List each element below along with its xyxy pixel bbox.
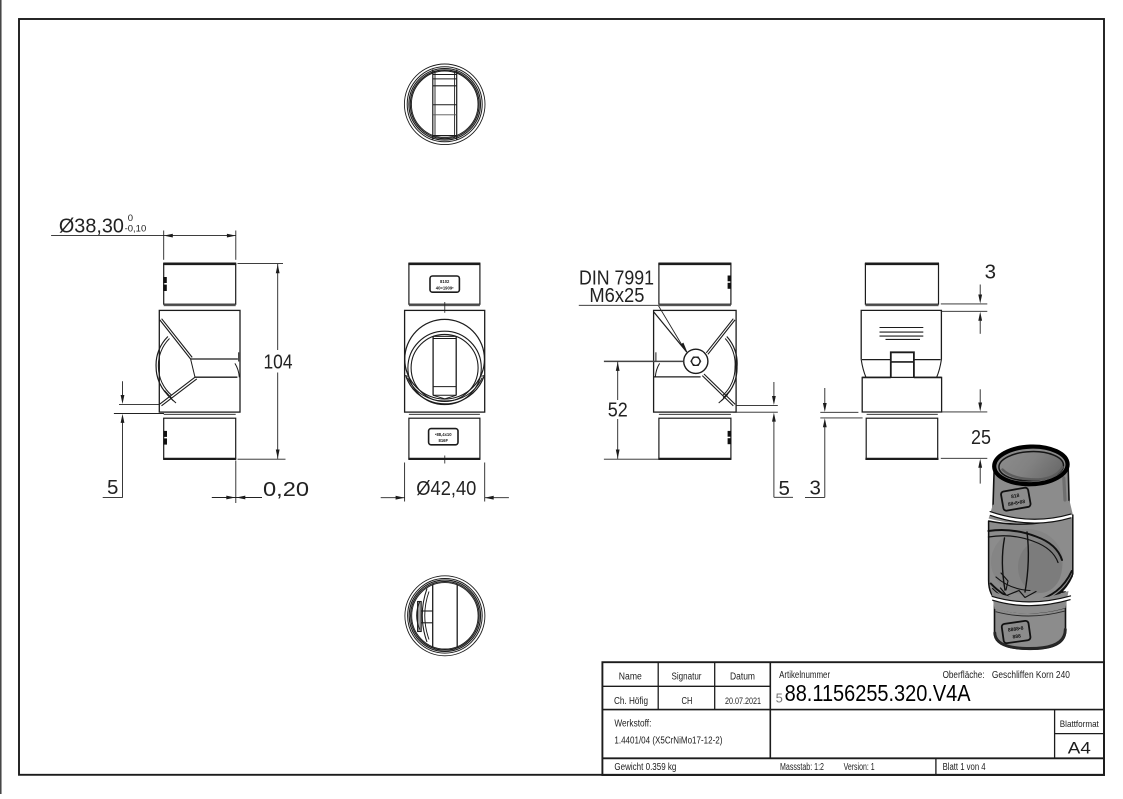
svg-text:5: 5	[779, 477, 790, 500]
svg-text:0,20: 0,20	[263, 478, 309, 501]
svg-text:Ø38,30: Ø38,30	[59, 215, 124, 238]
svg-text:104: 104	[264, 350, 293, 373]
svg-text:Werkstoff:: Werkstoff:	[614, 719, 651, 730]
svg-text:5: 5	[776, 691, 783, 706]
svg-text:0: 0	[128, 213, 133, 224]
svg-text:Signatur: Signatur	[672, 671, 703, 682]
svg-text:Blatt 1 von 4: Blatt 1 von 4	[943, 762, 986, 773]
svg-text:Name: Name	[619, 671, 642, 682]
svg-text:Blattformat: Blattformat	[1060, 719, 1099, 729]
svg-text:Ch. Höfig: Ch. Höfig	[614, 696, 648, 707]
svg-text:Version: 1: Version: 1	[844, 762, 875, 773]
svg-text:3: 3	[985, 261, 996, 284]
svg-text:888: 888	[1012, 633, 1021, 640]
svg-text:20.07.2021: 20.07.2021	[725, 696, 761, 706]
svg-text:Datum: Datum	[730, 671, 755, 682]
svg-text:52: 52	[608, 399, 628, 422]
svg-text:-0,10: -0,10	[125, 224, 147, 235]
svg-text:CH: CH	[682, 696, 693, 707]
svg-text:M6x25: M6x25	[589, 284, 644, 307]
svg-text:40=1909•: 40=1909•	[436, 286, 454, 291]
svg-text:8102: 8102	[440, 279, 450, 284]
svg-text:816F: 816F	[439, 438, 449, 443]
svg-text:Ø42,40: Ø42,40	[416, 477, 476, 500]
svg-text:A4: A4	[1068, 739, 1091, 758]
svg-text:Geschliffen Korn 240: Geschliffen Korn 240	[992, 670, 1070, 681]
svg-text:•88,4x10: •88,4x10	[435, 432, 452, 437]
svg-text:5: 5	[107, 476, 118, 499]
svg-text:88.1156255.320.V4A: 88.1156255.320.V4A	[785, 680, 971, 706]
svg-text:3: 3	[810, 477, 821, 500]
svg-text:Massstab: 1:2: Massstab: 1:2	[780, 762, 824, 773]
svg-text:1.4401/04 (X5CrNiMo17-12-2): 1.4401/04 (X5CrNiMo17-12-2)	[614, 736, 722, 747]
svg-text:Gewicht 0.359 kg: Gewicht 0.359 kg	[614, 762, 676, 773]
svg-text:25: 25	[971, 426, 991, 449]
